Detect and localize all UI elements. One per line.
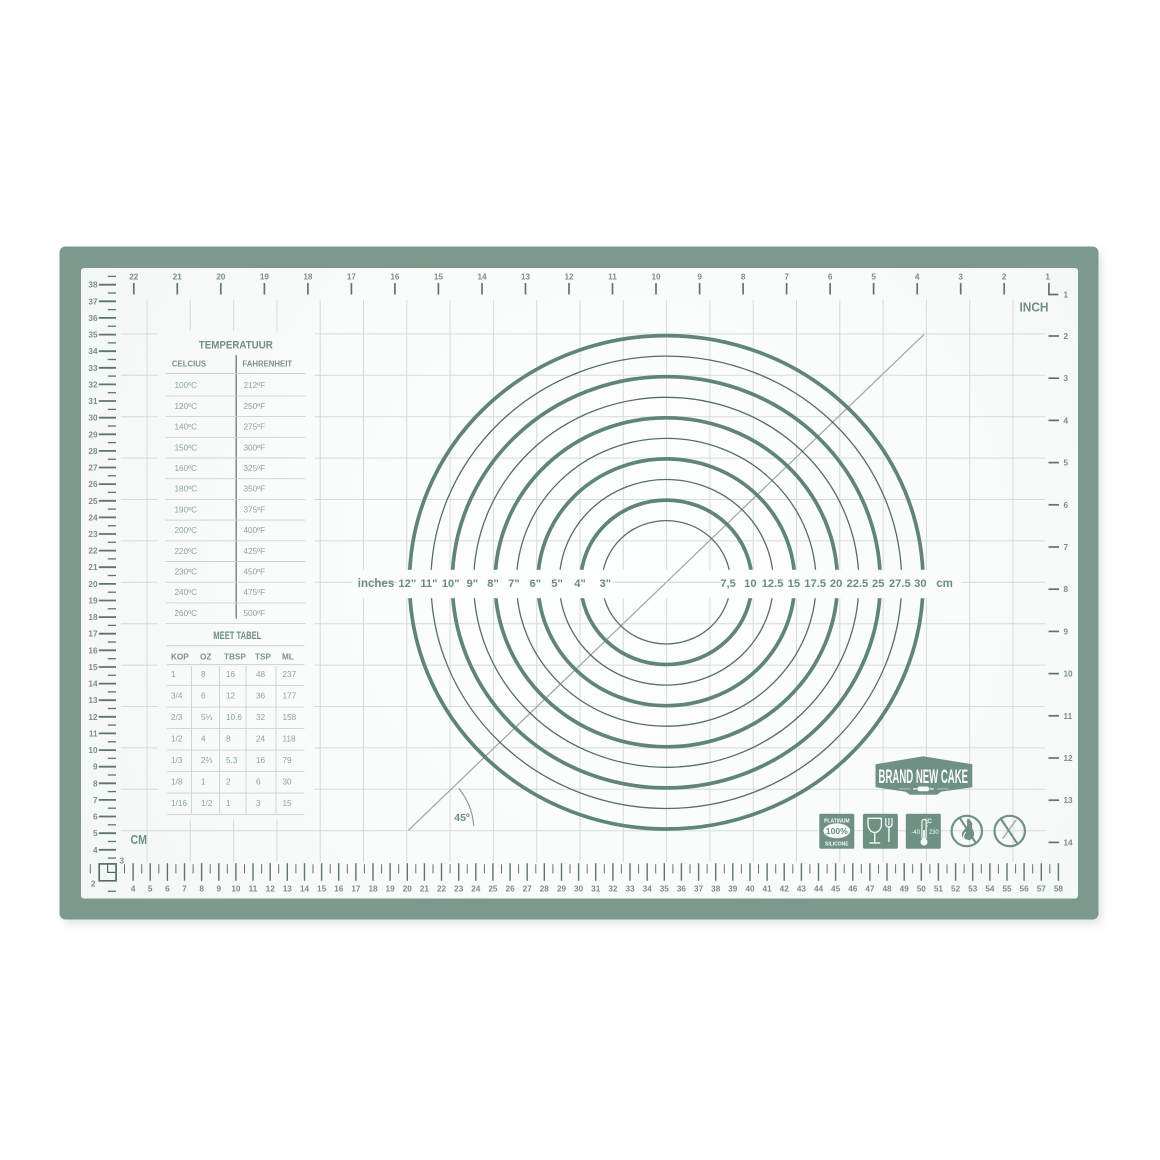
svg-text:11: 11 xyxy=(608,273,617,282)
svg-text:4: 4 xyxy=(915,273,920,282)
svg-text:16: 16 xyxy=(226,670,236,679)
svg-text:20: 20 xyxy=(216,273,226,282)
svg-text:9: 9 xyxy=(93,763,98,772)
svg-text:39: 39 xyxy=(728,885,738,894)
svg-text:4: 4 xyxy=(201,735,206,744)
svg-text:25: 25 xyxy=(488,885,498,894)
svg-text:7: 7 xyxy=(1064,543,1069,552)
svg-text:1/3: 1/3 xyxy=(171,756,183,765)
svg-text:31: 31 xyxy=(88,397,98,406)
svg-text:37: 37 xyxy=(88,297,98,306)
svg-text:15: 15 xyxy=(788,578,800,590)
svg-text:6: 6 xyxy=(256,778,261,787)
svg-text:18: 18 xyxy=(303,273,313,282)
svg-text:1/2: 1/2 xyxy=(171,735,183,744)
svg-text:6: 6 xyxy=(1064,501,1069,510)
svg-text:19: 19 xyxy=(260,273,270,282)
svg-text:35: 35 xyxy=(660,885,670,894)
svg-text:12: 12 xyxy=(1064,754,1074,763)
svg-text:38: 38 xyxy=(88,281,98,290)
svg-text:4: 4 xyxy=(1064,416,1069,425)
svg-text:21: 21 xyxy=(88,563,98,572)
svg-text:48: 48 xyxy=(882,885,892,894)
svg-text:51: 51 xyxy=(934,885,944,894)
svg-text:cm: cm xyxy=(936,578,953,590)
svg-text:400ºF: 400ºF xyxy=(244,526,266,535)
svg-text:47: 47 xyxy=(865,885,875,894)
svg-text:2: 2 xyxy=(91,880,96,889)
svg-text:21: 21 xyxy=(173,273,183,282)
svg-text:-40: -40 xyxy=(911,830,920,836)
svg-text:32: 32 xyxy=(608,885,618,894)
svg-text:29: 29 xyxy=(88,430,98,439)
svg-text:158: 158 xyxy=(283,713,297,722)
svg-text:OZ: OZ xyxy=(200,652,211,661)
svg-text:23: 23 xyxy=(454,885,464,894)
svg-text:30: 30 xyxy=(914,578,926,590)
svg-text:7: 7 xyxy=(182,885,187,894)
svg-text:8: 8 xyxy=(226,735,231,744)
svg-text:425ºF: 425ºF xyxy=(244,547,266,556)
svg-text:237: 237 xyxy=(283,670,297,679)
svg-text:40: 40 xyxy=(745,885,755,894)
svg-text:17: 17 xyxy=(347,273,357,282)
svg-text:220ºC: 220ºC xyxy=(175,547,198,556)
svg-text:23: 23 xyxy=(88,530,98,539)
svg-text:2: 2 xyxy=(226,778,231,787)
svg-text:20: 20 xyxy=(88,580,98,589)
svg-text:8: 8 xyxy=(1064,585,1069,594)
svg-text:11: 11 xyxy=(1064,712,1073,721)
svg-text:200ºC: 200ºC xyxy=(175,526,198,535)
svg-text:7,5: 7,5 xyxy=(720,578,736,590)
svg-text:5: 5 xyxy=(1064,459,1069,468)
svg-text:9": 9" xyxy=(467,578,479,590)
svg-text:17: 17 xyxy=(351,885,361,894)
svg-text:177: 177 xyxy=(283,692,297,701)
svg-text:79: 79 xyxy=(283,756,293,765)
svg-text:KOP: KOP xyxy=(171,652,189,661)
svg-text:12": 12" xyxy=(398,578,416,590)
svg-text:6: 6 xyxy=(165,885,170,894)
svg-text:3: 3 xyxy=(256,799,261,808)
svg-text:150ºC: 150ºC xyxy=(175,443,198,452)
svg-text:16: 16 xyxy=(334,885,344,894)
svg-text:140ºC: 140ºC xyxy=(175,423,198,432)
svg-text:inches: inches xyxy=(358,578,394,590)
svg-text:SILICONE: SILICONE xyxy=(825,842,849,848)
svg-text:36: 36 xyxy=(677,885,687,894)
svg-text:13: 13 xyxy=(1064,796,1074,805)
svg-text:21: 21 xyxy=(420,885,430,894)
svg-text:17.5: 17.5 xyxy=(804,578,826,590)
svg-text:9: 9 xyxy=(1064,627,1069,636)
svg-text:37: 37 xyxy=(694,885,704,894)
svg-text:CELCIUS: CELCIUS xyxy=(172,360,206,369)
svg-text:55: 55 xyxy=(1002,885,1012,894)
svg-text:1: 1 xyxy=(1064,291,1069,300)
svg-text:10: 10 xyxy=(651,273,661,282)
svg-text:100%: 100% xyxy=(826,826,848,836)
svg-text:180ºC: 180ºC xyxy=(175,485,198,494)
svg-text:5: 5 xyxy=(148,885,153,894)
svg-text:CM: CM xyxy=(131,833,148,847)
svg-text:TEMPERATUUR: TEMPERATUUR xyxy=(199,340,273,352)
svg-text:250ºF: 250ºF xyxy=(244,402,266,411)
svg-text:30: 30 xyxy=(283,778,293,787)
svg-text:2: 2 xyxy=(1002,273,1007,282)
svg-text:48: 48 xyxy=(256,670,266,679)
svg-text:4": 4" xyxy=(574,578,586,590)
svg-text:14: 14 xyxy=(88,680,98,689)
svg-text:36: 36 xyxy=(256,692,266,701)
svg-text:32: 32 xyxy=(88,380,98,389)
svg-text:10.6: 10.6 xyxy=(226,713,242,722)
svg-text:1/8: 1/8 xyxy=(171,778,183,787)
svg-text:46: 46 xyxy=(848,885,858,894)
svg-text:375ºF: 375ºF xyxy=(244,505,266,514)
svg-text:12: 12 xyxy=(266,885,276,894)
svg-text:18: 18 xyxy=(88,613,98,622)
svg-text:26: 26 xyxy=(88,480,98,489)
svg-text:3: 3 xyxy=(120,857,125,866)
svg-text:13: 13 xyxy=(283,885,293,894)
svg-text:275ºF: 275ºF xyxy=(244,423,266,432)
svg-text:2⅔: 2⅔ xyxy=(201,756,213,765)
svg-text:25: 25 xyxy=(872,578,884,590)
svg-text:31: 31 xyxy=(591,885,601,894)
svg-text:6: 6 xyxy=(93,813,98,822)
svg-text:12: 12 xyxy=(226,692,236,701)
svg-text:12: 12 xyxy=(564,273,574,282)
svg-text:5⅓: 5⅓ xyxy=(201,713,213,722)
svg-text:500ºF: 500ºF xyxy=(244,609,266,618)
svg-text:34: 34 xyxy=(643,885,653,894)
svg-text:42: 42 xyxy=(780,885,790,894)
svg-text:PLATINUM: PLATINUM xyxy=(824,818,849,824)
svg-text:10: 10 xyxy=(88,746,98,755)
svg-text:29: 29 xyxy=(557,885,567,894)
svg-text:22.5: 22.5 xyxy=(847,578,869,590)
svg-text:230: 230 xyxy=(929,830,940,836)
svg-text:MEET TABEL: MEET TABEL xyxy=(213,630,261,642)
svg-text:7: 7 xyxy=(784,273,789,282)
svg-text:27: 27 xyxy=(88,464,98,473)
svg-text:5": 5" xyxy=(551,578,563,590)
svg-text:1/16: 1/16 xyxy=(171,799,187,808)
svg-text:33: 33 xyxy=(88,364,98,373)
svg-text:57: 57 xyxy=(1037,885,1047,894)
svg-text:24: 24 xyxy=(256,735,266,744)
svg-text:41: 41 xyxy=(763,885,773,894)
svg-text:13: 13 xyxy=(521,273,531,282)
svg-text:100ºC: 100ºC xyxy=(175,381,198,390)
svg-text:44: 44 xyxy=(814,885,824,894)
svg-text:26: 26 xyxy=(506,885,516,894)
svg-text:BRAND NEW CAKE: BRAND NEW CAKE xyxy=(879,767,969,788)
svg-text:212ºF: 212ºF xyxy=(244,381,266,390)
svg-text:12: 12 xyxy=(88,713,98,722)
svg-text:3: 3 xyxy=(1064,374,1069,383)
svg-text:24: 24 xyxy=(88,513,98,522)
svg-text:14: 14 xyxy=(1064,838,1074,847)
svg-text:15: 15 xyxy=(283,799,293,808)
svg-text:1: 1 xyxy=(201,778,206,787)
svg-text:45: 45 xyxy=(831,885,841,894)
svg-text:20: 20 xyxy=(403,885,413,894)
svg-text:7: 7 xyxy=(93,796,98,805)
svg-text:22: 22 xyxy=(437,885,447,894)
svg-text:5.3: 5.3 xyxy=(226,756,238,765)
svg-text:13: 13 xyxy=(88,696,98,705)
svg-text:6: 6 xyxy=(828,273,833,282)
svg-text:50: 50 xyxy=(917,885,927,894)
svg-text:36: 36 xyxy=(88,314,98,323)
svg-text:53: 53 xyxy=(968,885,978,894)
svg-text:38: 38 xyxy=(711,885,721,894)
svg-text:3": 3" xyxy=(600,578,612,590)
svg-text:TBSP: TBSP xyxy=(224,652,246,661)
svg-text:49: 49 xyxy=(900,885,910,894)
svg-text:4: 4 xyxy=(131,885,136,894)
svg-text:1: 1 xyxy=(171,670,176,679)
svg-text:2/3: 2/3 xyxy=(171,713,183,722)
svg-text:24: 24 xyxy=(471,885,481,894)
svg-text:FAHRENHEIT: FAHRENHEIT xyxy=(242,360,292,369)
svg-text:10: 10 xyxy=(1064,670,1074,679)
svg-text:58: 58 xyxy=(1054,885,1064,894)
svg-text:7": 7" xyxy=(508,578,520,590)
svg-text:1: 1 xyxy=(1045,273,1050,282)
svg-text:8: 8 xyxy=(93,779,98,788)
svg-text:TSP: TSP xyxy=(255,652,271,661)
svg-text:260ºC: 260ºC xyxy=(175,609,198,618)
svg-text:190ºC: 190ºC xyxy=(175,505,198,514)
svg-text:10: 10 xyxy=(231,885,241,894)
svg-text:16: 16 xyxy=(88,646,98,655)
svg-text:INCH: INCH xyxy=(1020,301,1049,315)
svg-text:475ºF: 475ºF xyxy=(244,588,266,597)
svg-text:34: 34 xyxy=(88,347,98,356)
svg-text:30: 30 xyxy=(574,885,584,894)
svg-text:16: 16 xyxy=(390,273,400,282)
svg-text:160ºC: 160ºC xyxy=(175,464,198,473)
svg-text:3/4: 3/4 xyxy=(171,692,183,701)
svg-text:15: 15 xyxy=(434,273,444,282)
svg-text:240ºC: 240ºC xyxy=(175,588,198,597)
svg-text:1/2: 1/2 xyxy=(201,799,213,808)
svg-text:20: 20 xyxy=(830,578,842,590)
svg-text:43: 43 xyxy=(797,885,807,894)
svg-text:8: 8 xyxy=(201,670,206,679)
svg-text:1: 1 xyxy=(226,799,231,808)
svg-text:9: 9 xyxy=(697,273,702,282)
svg-text:14: 14 xyxy=(300,885,310,894)
svg-text:45º: 45º xyxy=(454,812,470,824)
svg-text:19: 19 xyxy=(88,597,98,606)
svg-text:22: 22 xyxy=(129,273,139,282)
svg-text:17: 17 xyxy=(88,630,98,639)
svg-text:18: 18 xyxy=(368,885,378,894)
svg-text:2: 2 xyxy=(1064,332,1069,341)
svg-text:3: 3 xyxy=(958,273,963,282)
svg-text:120ºC: 120ºC xyxy=(175,402,198,411)
svg-text:8: 8 xyxy=(199,885,204,894)
svg-text:5: 5 xyxy=(93,829,98,838)
svg-text:350ºF: 350ºF xyxy=(244,485,266,494)
svg-text:11: 11 xyxy=(89,729,98,738)
svg-text:5: 5 xyxy=(871,273,876,282)
svg-text:4: 4 xyxy=(93,846,98,855)
svg-text:19: 19 xyxy=(386,885,396,894)
svg-text:450ºF: 450ºF xyxy=(244,568,266,577)
svg-text:28: 28 xyxy=(88,447,98,456)
svg-text:300ºF: 300ºF xyxy=(244,443,266,452)
svg-text:28: 28 xyxy=(540,885,550,894)
svg-text:6: 6 xyxy=(201,692,206,701)
svg-text:ML: ML xyxy=(282,652,294,661)
svg-text:8": 8" xyxy=(487,578,499,590)
svg-text:54: 54 xyxy=(985,885,995,894)
svg-text:15: 15 xyxy=(317,885,327,894)
svg-text:8: 8 xyxy=(741,273,746,282)
svg-text:14: 14 xyxy=(477,273,487,282)
svg-text:10": 10" xyxy=(442,578,460,590)
svg-text:6": 6" xyxy=(530,578,542,590)
svg-text:118: 118 xyxy=(283,735,296,744)
svg-text:25: 25 xyxy=(88,497,98,506)
svg-text:325ºF: 325ºF xyxy=(244,464,266,473)
svg-text:230ºC: 230ºC xyxy=(175,568,198,577)
svg-text:27.5: 27.5 xyxy=(889,578,911,590)
svg-text:52: 52 xyxy=(951,885,961,894)
svg-text:9: 9 xyxy=(217,885,222,894)
svg-text:10: 10 xyxy=(744,578,756,590)
svg-text:33: 33 xyxy=(625,885,635,894)
svg-text:27: 27 xyxy=(523,885,533,894)
svg-text:11: 11 xyxy=(249,885,258,894)
svg-text:22: 22 xyxy=(88,547,98,556)
svg-text:30: 30 xyxy=(88,414,98,423)
svg-text:35: 35 xyxy=(88,331,98,340)
svg-text:56: 56 xyxy=(1020,885,1030,894)
svg-text:16: 16 xyxy=(256,756,266,765)
svg-text:12.5: 12.5 xyxy=(762,578,784,590)
svg-text:15: 15 xyxy=(88,663,98,672)
svg-text:32: 32 xyxy=(256,713,266,722)
svg-text:11": 11" xyxy=(420,578,437,590)
